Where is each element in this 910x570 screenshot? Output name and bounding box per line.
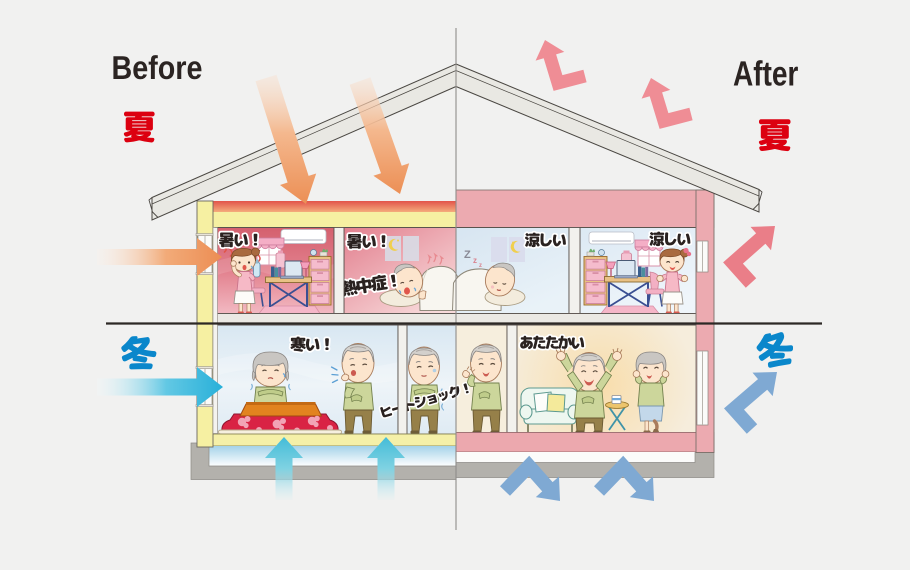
- svg-text:z: z: [473, 256, 477, 265]
- svg-text:Z: Z: [464, 249, 471, 261]
- svg-text:z: z: [479, 263, 482, 269]
